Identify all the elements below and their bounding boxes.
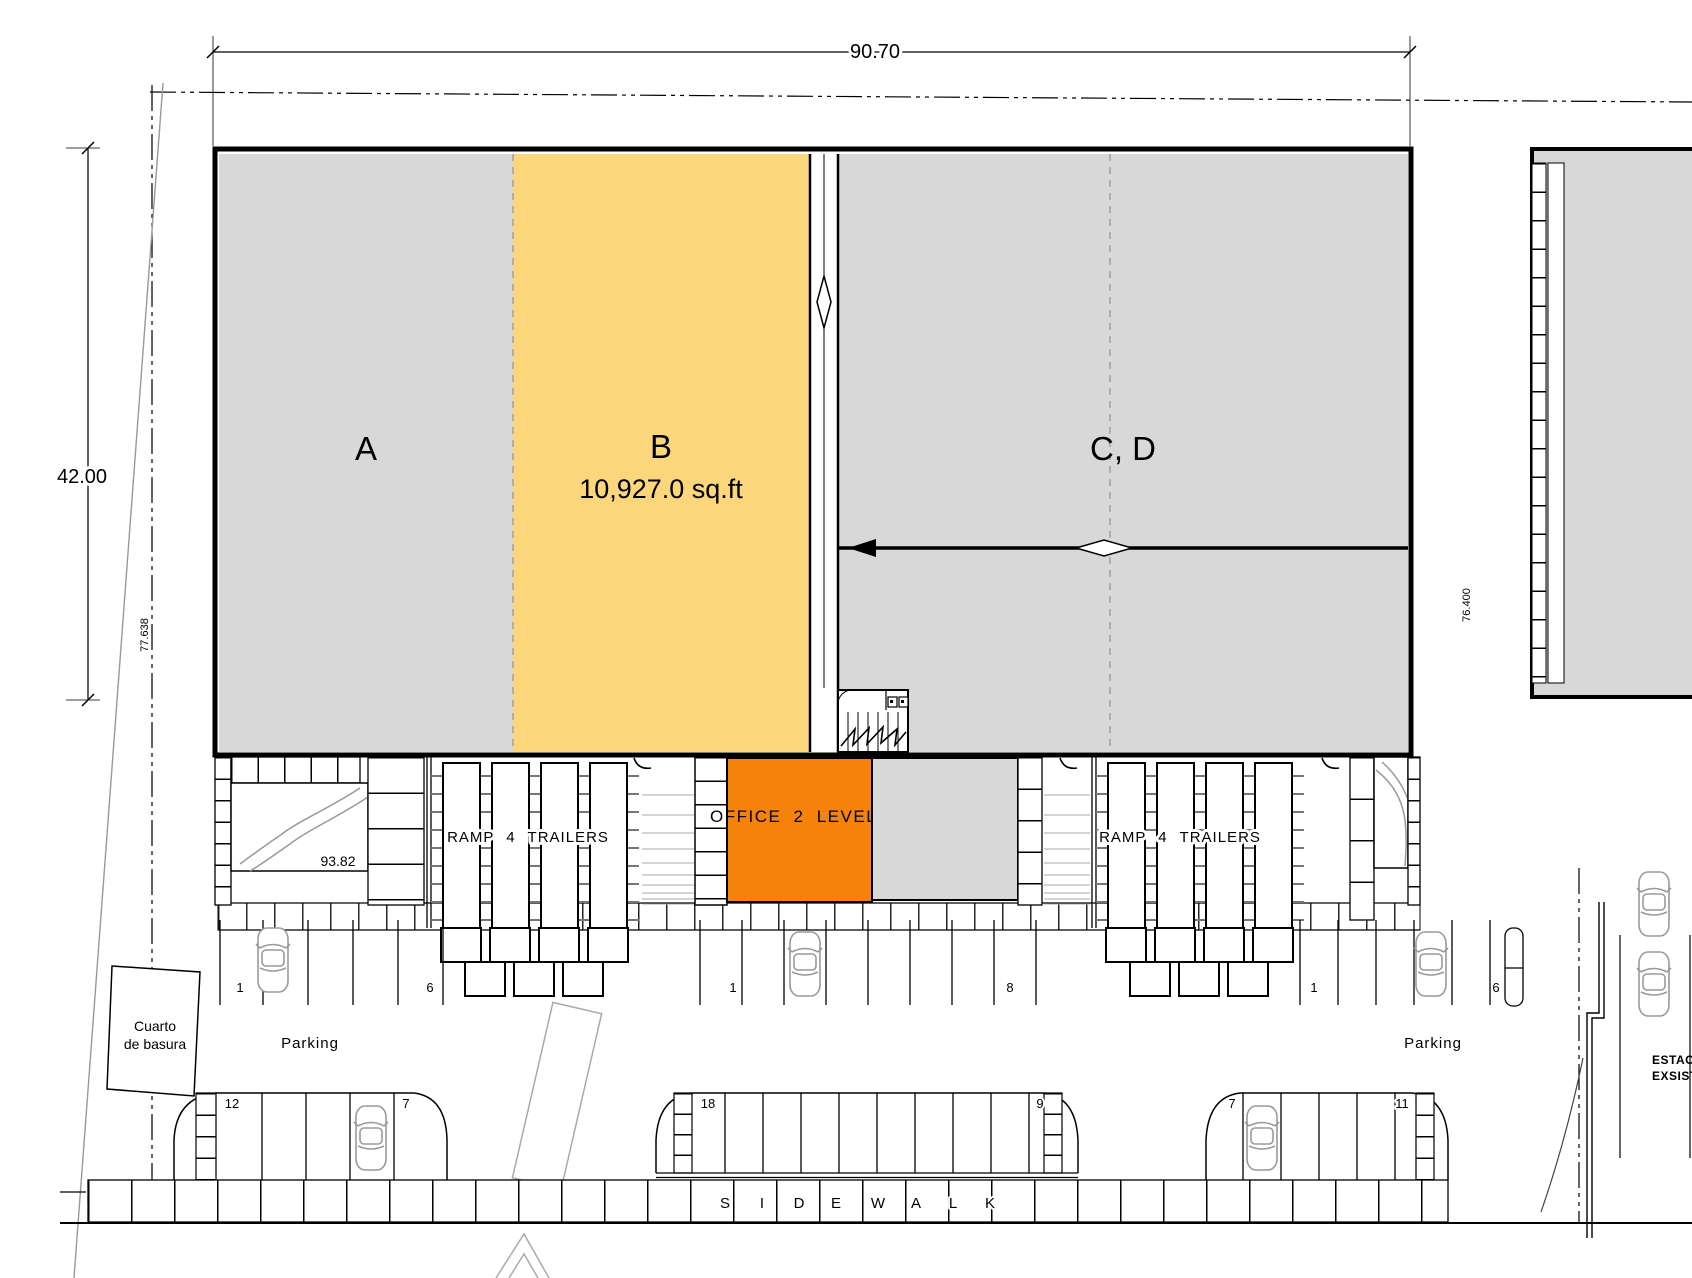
trailer-ramp-right: RAMP 4 TRAILERS — [1099, 763, 1298, 996]
dimension-top-value: 90.70 — [850, 41, 900, 63]
stall-end-cap — [1505, 928, 1523, 1006]
existing-lot-label-2: EXSISTE — [1652, 1069, 1692, 1083]
stall-number: 6 — [426, 980, 433, 995]
unit-b-label: B — [650, 428, 672, 465]
floor-plan-canvas: 90.70 42.00 77.638 76.400 — [0, 0, 1692, 1278]
dimension-top: 90.70 — [207, 36, 1416, 146]
stall-number: 12 — [225, 1096, 239, 1111]
office-annex-area — [872, 758, 1018, 900]
parking-right-label: Parking — [1404, 1035, 1462, 1052]
ramp-slope-right — [1044, 795, 1090, 904]
unit-b-area-label: 10,927.0 sq.ft — [579, 474, 743, 504]
upper-parking-row — [220, 920, 1523, 1006]
trash-room: Cuarto de basura — [107, 966, 200, 1096]
unit-a-label: A — [355, 430, 377, 467]
trash-room-label-2: de basura — [124, 1036, 186, 1052]
car-icon — [1414, 932, 1448, 996]
tractor-boxes — [441, 928, 628, 996]
upper-right-stalls — [1300, 920, 1523, 1006]
sidewalk-letter: D — [794, 1195, 805, 1212]
upper-middle-stalls — [700, 920, 1036, 1005]
dimension-left-value: 42.00 — [57, 466, 107, 488]
existing-building — [1532, 149, 1692, 697]
tractor-boxes — [1106, 928, 1293, 996]
dock-ramp-panel-left: 93.82 — [231, 783, 368, 871]
sidewalk-letter: L — [949, 1195, 957, 1212]
sidewalk-letter: S — [720, 1195, 730, 1212]
car-icon — [1637, 952, 1671, 1016]
upper-left-stalls — [220, 920, 443, 1005]
dock-level-label: 93.82 — [320, 853, 355, 869]
car-icon — [1245, 1106, 1279, 1170]
main-building: A B 10,927.0 sq.ft C, D — [215, 149, 1411, 755]
stall-number: 1 — [729, 980, 736, 995]
dimension-left: 42.00 — [57, 142, 107, 706]
lower-parking-middle — [656, 1093, 1078, 1178]
existing-lot: ESTACIO EXSISTE — [1541, 872, 1692, 1238]
boundary-right-value: 76.400 — [1461, 588, 1473, 622]
slanted-feature — [496, 1002, 602, 1278]
sidewalk-letter: E — [831, 1195, 841, 1212]
sidewalk-letter: K — [985, 1195, 995, 1212]
car-icon — [788, 932, 822, 996]
property-line-top — [150, 92, 1692, 102]
car-icon — [354, 1106, 388, 1170]
stall-number: 7 — [1228, 1096, 1235, 1111]
sidewalk-band: S I D E W A L K — [88, 1180, 1448, 1222]
door-swing-icon — [1322, 758, 1339, 768]
sidewalk-letter: W — [871, 1195, 886, 1212]
stall-number: 18 — [701, 1096, 715, 1111]
parking-left-label: Parking — [281, 1035, 339, 1052]
stall-number: 1 — [1310, 980, 1317, 995]
car-icon — [256, 928, 290, 992]
trash-room-label-1: Cuarto — [134, 1018, 176, 1034]
boundary-left-value: 77.638 — [139, 618, 151, 652]
car-icon — [1637, 872, 1671, 936]
stall-number: 7 — [402, 1096, 409, 1111]
curb-return-curve — [1541, 1058, 1583, 1212]
site-plan-page: 90.70 42.00 77.638 76.400 — [0, 0, 1692, 1278]
office-label: OFFICE 2 LEVELS — [710, 807, 890, 826]
stall-number: 11 — [1395, 1096, 1409, 1111]
ramp-left-label: RAMP 4 TRAILERS — [447, 829, 609, 846]
stall-number: 8 — [1006, 980, 1013, 995]
ramp-right-label: RAMP 4 TRAILERS — [1099, 829, 1261, 846]
office-area — [727, 758, 872, 902]
lower-parking-right — [1206, 1093, 1448, 1180]
sidewalk-letter: I — [760, 1195, 764, 1212]
sidewalk-letter: A — [911, 1195, 921, 1212]
interior-stair-room — [838, 690, 908, 752]
ramp-slope-left — [642, 795, 694, 904]
door-swing-icon — [1060, 758, 1077, 768]
trailer-ramp-left: RAMP 4 TRAILERS — [437, 763, 633, 996]
stall-number: 9 — [1036, 1096, 1043, 1111]
unit-cd-label: C, D — [1090, 430, 1156, 467]
door-swing-icon — [634, 758, 651, 768]
existing-lot-label-1: ESTACIO — [1652, 1053, 1692, 1067]
stall-number: 6 — [1492, 980, 1499, 995]
chevron-icon — [509, 1254, 538, 1278]
office-block: OFFICE 2 LEVELS — [710, 758, 890, 902]
stall-number: 1 — [236, 980, 243, 995]
boundary-slant-line — [74, 83, 163, 1278]
